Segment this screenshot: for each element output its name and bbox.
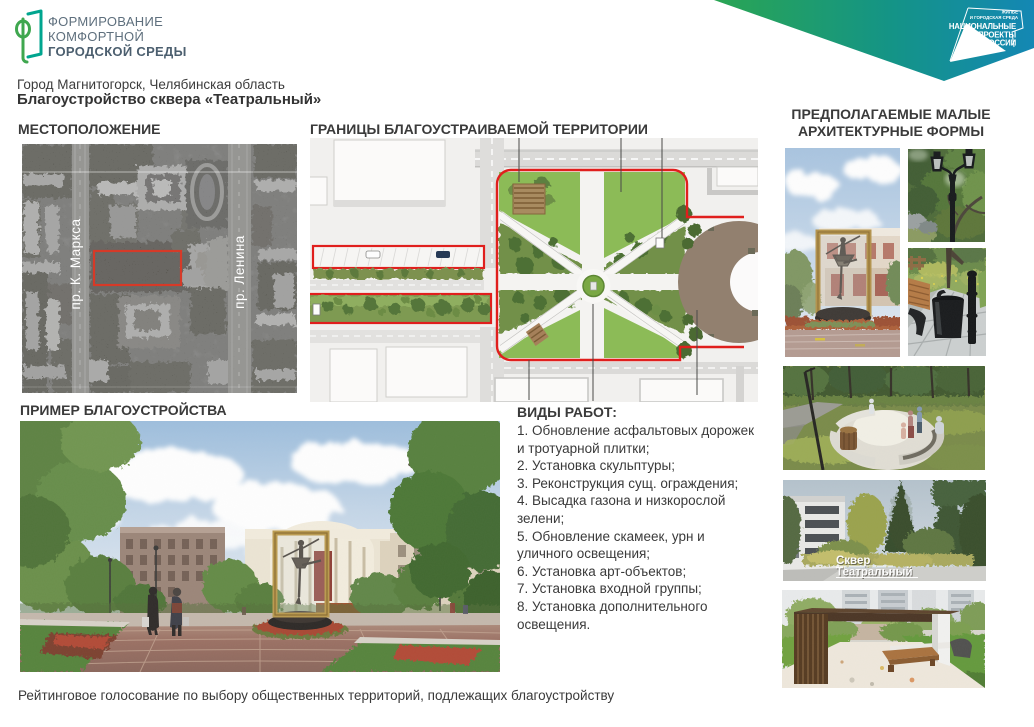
svg-text:ЖИЛЬЕ: ЖИЛЬЕ [1001,10,1018,15]
svg-text:И ГОРОДСКАЯ СРЕДА: И ГОРОДСКАЯ СРЕДА [970,15,1019,20]
svg-text:пр. Ленина: пр. Ленина [232,235,247,309]
svg-text:РОССИИ: РОССИИ [984,39,1017,48]
svg-text:пр. К. Маркса: пр. К. Маркса [68,219,83,310]
